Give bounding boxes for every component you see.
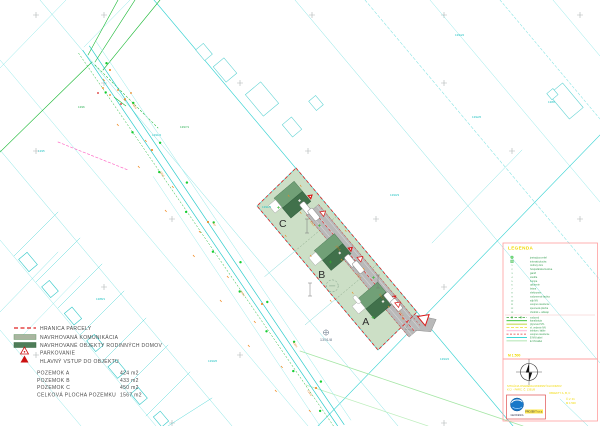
panel-item-label: brána [530,288,537,291]
sheet-scale: M 1:500 [566,401,576,405]
panel-item-label: verejné osvetlenie [530,303,550,306]
table-name: CELKOVÁ PLOCHA POZEMKU [37,391,116,398]
panel-item-label: stĺp NN [530,299,538,302]
svg-text:3: 3 [511,273,513,275]
panel-legend-items: jestvujúca zeleň trávnatá plocha 1rodinn… [511,256,553,314]
lot-label-c: C [279,218,287,230]
table-value: 424 m2 [120,371,139,377]
utility-label: E-VN kábel [530,340,543,343]
legend-label: HLAVNÝ VSTUP DO OBJEKTU [40,358,119,365]
svg-text:6: 6 [511,285,513,287]
table-value: 433 m2 [120,378,139,384]
parcel-label: 1394/2 [455,33,465,37]
table-name: POZEMOK B [37,378,70,384]
panel-item-label: žumpa [530,280,538,283]
svg-text:12: 12 [511,308,514,310]
panel-utility-lines: vodovod kanalizácia plynovod STL el. ved… [507,316,550,342]
panel-item-label: trávnatá plocha [530,260,547,263]
table-name: POZEMOK C [37,385,70,391]
svg-text:11: 11 [511,304,514,306]
parcel-label: 1397/1 [180,125,190,129]
legend-label: PARKOVANIE [40,351,76,357]
drawing-canvas: 438/2 215.6 437 216.1 436/1 215.8 [0,0,600,426]
legend-sample-road [14,335,36,340]
parcel-label: 1395 [38,149,45,153]
stamp-type: PROJEKT s.r.o. [525,411,543,414]
panel-item-label: elektromer [530,292,541,295]
title-block: SITUÁCIA OSADENIA RODINNÝCH DOMOV K.Ú. -… [507,384,577,419]
street-label: 215.6 [159,171,165,178]
street-label: 215.8 [306,390,312,397]
panel-item-label: spevnená plocha [530,307,549,310]
parcel-number-symbol: 1391/8 [320,330,333,342]
panel-item-label: jestvujúca zeleň [529,256,548,259]
svg-text:13: 13 [511,312,514,314]
panel-item-label: oplotenie [530,284,540,287]
legend-sample-entrance [21,356,29,363]
parcel-label: 1388/1 [96,297,106,301]
panel-item-label: hospodárska budova [530,268,553,271]
svg-text:1: 1 [511,265,513,267]
parcel-number: 1391/8 [320,337,333,342]
legend-sample-building [14,343,36,348]
proposed-site: 216.3 215.9 216.4 215.7 216.0 C B A 1391… [257,168,436,350]
parcel-label: 1392/6 [472,115,482,119]
info-line: SITUÁCIA OSADENIA RODINNÝCH DOMOV [507,384,562,388]
stamp-name: GEODESIA [510,414,523,417]
legend-label: NAVRHOVANÉ OBJEKTY RODINNÝCH DOMOV [40,342,163,349]
street-label: 436/1 [292,341,298,348]
panel-item-label: rodinný dom [530,264,543,267]
svg-text:2: 2 [511,269,513,271]
legend: HRANICA PARCELY NAVRHOVANÁ KOMUNIKÁCIA N… [14,326,163,398]
svg-text:8: 8 [511,293,513,295]
street-labels: 438/2 215.6 437 216.1 436/1 215.8 [131,103,313,397]
lot-label-a: A [362,316,370,328]
panel-item-label: studňa [530,276,538,279]
panel-title: LEGENDA [508,246,534,251]
panel-item-label: chodník + odkvap [530,311,549,314]
svg-text:5: 5 [511,281,513,283]
scale-label: M 1:500 [508,354,521,358]
svg-text:4: 4 [511,277,513,279]
table-value: 450 m2 [120,385,139,391]
company-stamp: GEODESIA PROJEKT s.r.o. [507,395,546,419]
street-label: 216.1 [239,290,245,297]
site-plan-drawing: 438/2 215.6 437 216.1 436/1 215.8 [0,0,600,426]
north-arrow [516,359,542,385]
table-name: POZEMOK A [37,371,70,377]
legend-label: HRANICA PARCELY [40,326,92,332]
info-line: OBJEKTY A, B, C [549,391,570,395]
street-label: 437 [212,222,217,228]
parcel-label: 1396 [78,105,85,109]
svg-text:7: 7 [511,289,513,291]
legend-sample-parking [21,347,29,354]
svg-text:9: 9 [511,296,513,298]
lot-label-b: B [318,269,326,281]
panel-item-label: vodomerná šachta [530,295,550,298]
legend-label: NAVRHOVANÁ KOMUNIKÁCIA [40,334,119,341]
svg-text:10: 10 [511,300,514,302]
parcel-label: 1391/2 [152,133,162,137]
parcel-label: 1391/5 [262,205,272,209]
panel-item-label: garáž [530,272,537,275]
parcel-label: 1390/6 [208,359,218,363]
sheet-number: Č.V. 01 [566,396,575,401]
area-table: POZEMOK A 424 m2 POZEMOK B 433 m2 POZEMO… [37,371,142,399]
right-panel: LEGENDA jestvujúca zeleň trávnatá plocha… [503,243,598,421]
parcel-label: 1390/3 [390,193,400,197]
parcel-label: 1393/2 [440,357,450,361]
table-value: 1567 m2 [120,392,142,398]
parcel-label: 1389 [548,100,555,104]
